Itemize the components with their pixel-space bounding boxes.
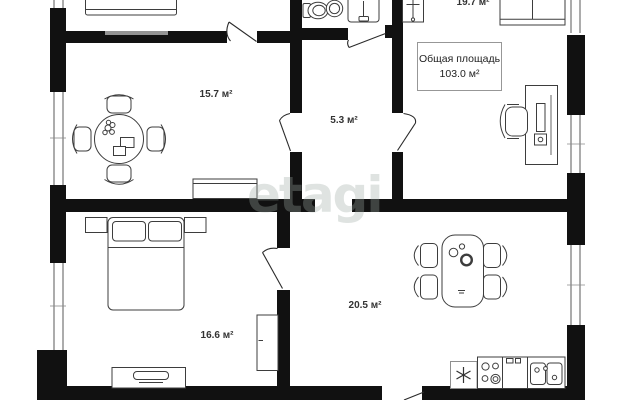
chair-icon (484, 244, 501, 268)
window-icon (571, 0, 580, 33)
chair-icon (484, 275, 501, 299)
door-swing-icon (280, 114, 291, 152)
total-area-value: 103.0 м² (440, 68, 480, 80)
chair-icon (74, 127, 91, 151)
door-swing-icon (398, 114, 416, 151)
chair-icon (421, 275, 438, 299)
shower-cabin-icon (348, 0, 379, 22)
watermark: etagi (247, 170, 381, 220)
room-area-label: 16.6 м² (201, 330, 234, 341)
window-icon (54, 0, 63, 8)
total-area-box: Общая площадь 103.0 м² (417, 42, 502, 91)
coat-rack-icon (403, 0, 424, 22)
dining-table-icon (414, 235, 507, 307)
total-area-title: Общая площадь (419, 53, 500, 65)
kitchen-sink-icon (528, 357, 566, 389)
shelf-icon (105, 31, 168, 35)
chair-icon (421, 244, 438, 268)
door-swing-icon (263, 248, 283, 288)
chair-icon (147, 127, 164, 151)
window-icon (567, 115, 585, 173)
toilet-icon (303, 2, 328, 19)
room-area-label: 5.3 м² (330, 115, 357, 126)
nightstand-icon (185, 218, 207, 233)
bed-icon (86, 0, 177, 15)
room-area-label: 20.5 м² (349, 300, 382, 311)
washbasin-icon (326, 0, 342, 16)
chair-icon (107, 165, 131, 182)
nightstand-icon (86, 218, 108, 233)
door-swing-icon (227, 22, 257, 42)
stove-icon (478, 357, 503, 389)
wardrobe-icon (257, 315, 278, 371)
desk-icon (526, 86, 558, 165)
window-icon (50, 263, 66, 350)
room-area-label: 15.7 м² (200, 89, 233, 100)
wardrobe-icon (500, 0, 565, 25)
chair-icon (107, 96, 131, 113)
office-chair-icon (500, 105, 527, 139)
fridge-icon (451, 362, 478, 389)
floor-plan: 15.7 м² 5.3 м² 19.7 м² 16.6 м² 20.5 м² О… (0, 0, 640, 400)
window-icon (50, 92, 66, 185)
door-swing-icon (348, 34, 386, 48)
room-area-label: 19.7 м² (457, 0, 490, 8)
window-icon (567, 245, 585, 325)
round-dining-table-icon (73, 95, 166, 185)
door-swing-icon (404, 392, 424, 400)
bed-icon (108, 218, 184, 311)
kitchen-cabinet-icon (503, 357, 528, 389)
tv-stand-icon (112, 368, 186, 389)
